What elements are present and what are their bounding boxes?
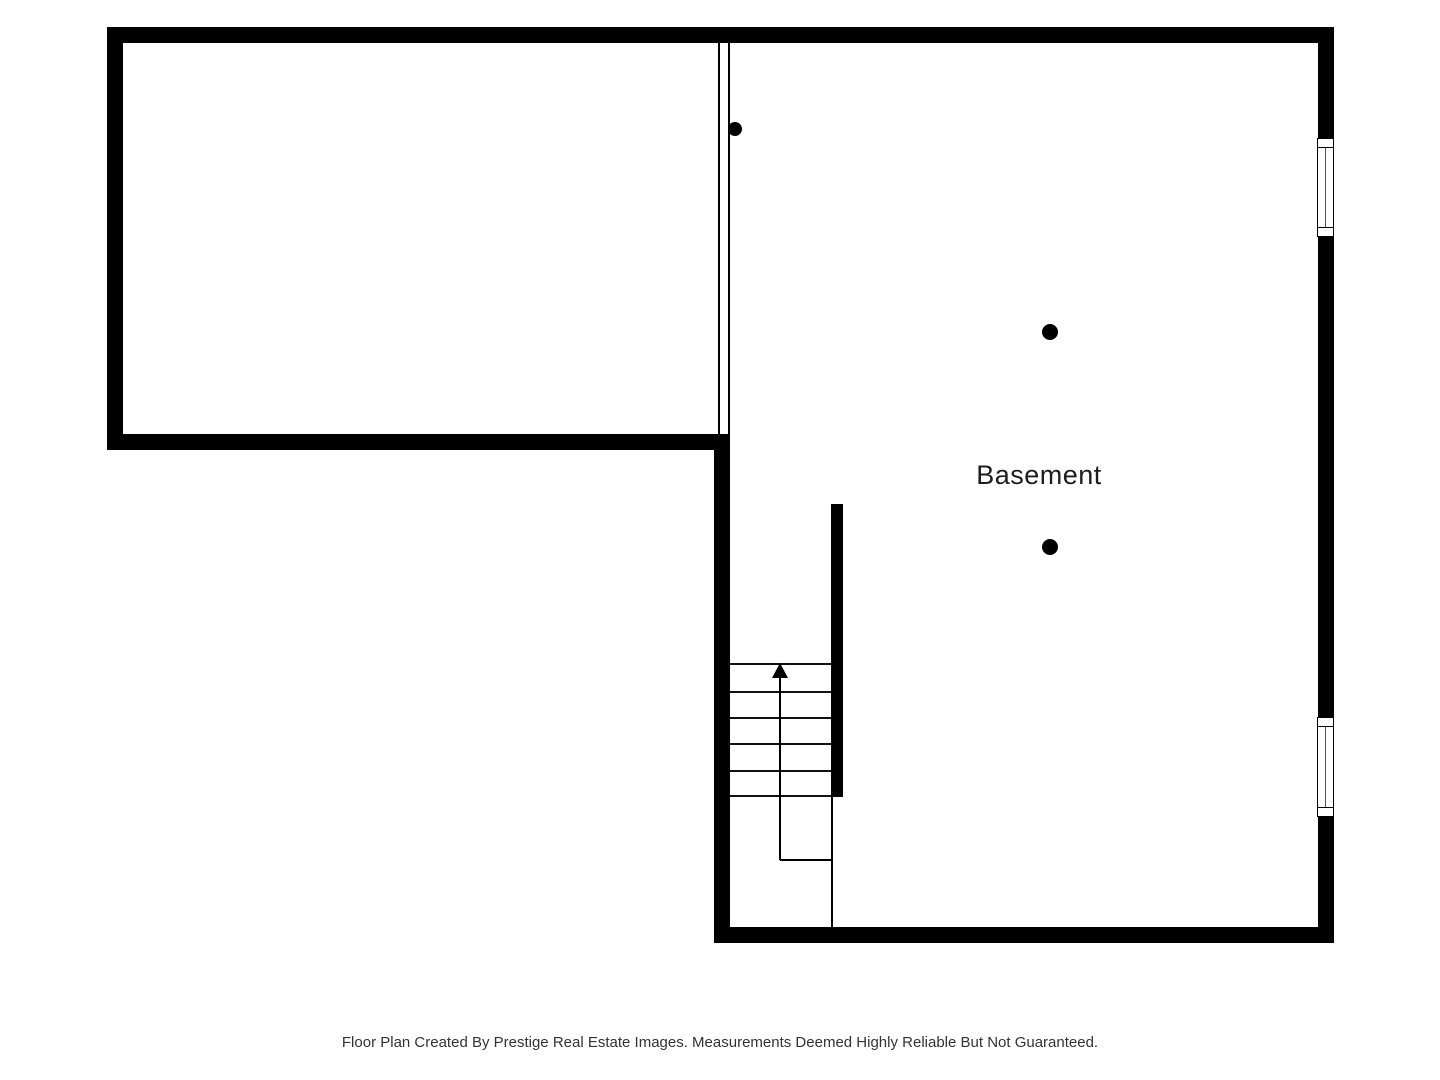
wall-basement-west <box>714 434 730 943</box>
stairs-path-turn-line <box>780 859 832 861</box>
wall-left-room-south <box>107 434 730 450</box>
stairwell-edge-line <box>831 797 833 927</box>
room-divider-line-right <box>728 43 730 434</box>
floor-plan-canvas: Basement Floor Plan Created By Prestige … <box>0 0 1440 1080</box>
footer-disclaimer: Floor Plan Created By Prestige Real Esta… <box>0 1034 1440 1051</box>
window-icon <box>1317 138 1334 237</box>
room-divider-line-left <box>718 43 720 434</box>
window-sill-bottom <box>1318 807 1333 808</box>
window-glass-line <box>1325 148 1326 227</box>
wall-stairwell <box>831 504 843 797</box>
support-column-dot <box>728 122 742 136</box>
window-glass-line <box>1325 727 1326 807</box>
support-column-dot <box>1042 539 1058 555</box>
wall-east-upper <box>1318 27 1334 138</box>
stairs-up-arrow-icon <box>772 663 788 678</box>
wall-east-lower <box>1318 817 1334 943</box>
stairs-path-line <box>779 677 781 860</box>
window-sill-bottom <box>1318 227 1333 228</box>
window-icon <box>1317 717 1334 817</box>
wall-basement-south <box>714 927 1334 943</box>
window-sill-top <box>1318 147 1333 148</box>
wall-top <box>107 27 1334 43</box>
support-column-dot <box>1042 324 1058 340</box>
window-sill-top <box>1318 726 1333 727</box>
wall-east-middle <box>1318 237 1334 717</box>
wall-left-room-west <box>107 27 123 450</box>
room-label-basement: Basement <box>939 459 1139 491</box>
